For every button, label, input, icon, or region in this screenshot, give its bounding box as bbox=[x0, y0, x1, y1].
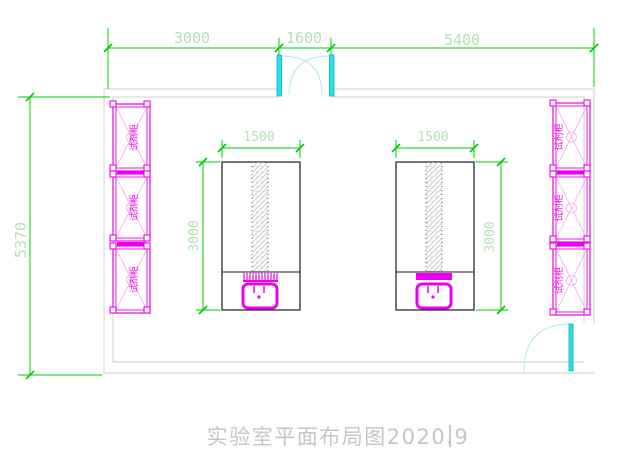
bench-center-duct bbox=[426, 162, 442, 272]
cabinet-column-left: 试剂柜 试剂柜 试剂柜 bbox=[110, 101, 150, 313]
cabinet-label: 试剂柜 bbox=[128, 266, 140, 293]
cabinet-divider bbox=[557, 242, 586, 246]
lab-bench-right bbox=[396, 162, 474, 310]
drawing-title-block: 实验室平面布局图2020.9 bbox=[207, 425, 469, 449]
bench-center-duct bbox=[252, 162, 268, 272]
reagent-cabinet: 试剂柜 bbox=[110, 101, 150, 171]
dimension-top: 3000 1600 5400 bbox=[104, 28, 598, 89]
reagent-cabinet: 试剂柜 bbox=[110, 171, 150, 241]
bench-depth-label: 3000 bbox=[187, 220, 202, 251]
right-single-door bbox=[524, 324, 573, 371]
cabinet-label: 试剂柜 bbox=[553, 123, 565, 150]
bench-width-label: 1500 bbox=[417, 130, 448, 145]
cabinet-label: 试剂柜 bbox=[128, 124, 140, 151]
door-leaf-right bbox=[330, 55, 335, 96]
floor-plan-canvas[interactable]: 3000 1600 5400 5370 bbox=[0, 0, 619, 469]
door-arc-right bbox=[289, 56, 330, 95]
door-arc-left bbox=[281, 56, 322, 95]
drawing-title: 实验室平面布局图2020.9 bbox=[207, 425, 469, 449]
door-arc bbox=[524, 324, 571, 371]
cabinet-label: 试剂柜 bbox=[553, 267, 565, 294]
dimension-left: 5370 bbox=[12, 93, 110, 379]
cabinet-divider bbox=[117, 242, 146, 246]
bench-width-label: 1500 bbox=[243, 130, 274, 145]
door-leaf-left bbox=[277, 55, 282, 96]
bench-depth-label: 3000 bbox=[483, 221, 498, 252]
dim-left-height-label: 5370 bbox=[12, 222, 30, 258]
dim-top-middle-label: 1600 bbox=[286, 29, 322, 47]
lab-bench-left bbox=[222, 162, 300, 310]
top-double-door bbox=[277, 55, 334, 96]
cabinet-label: 试剂柜 bbox=[553, 194, 565, 221]
reagent-cabinet: 试剂柜 bbox=[110, 243, 150, 313]
dim-top-left-label: 3000 bbox=[174, 29, 210, 47]
door-leaf bbox=[569, 324, 573, 371]
dim-top-right-label: 5400 bbox=[444, 31, 480, 49]
cad-drawing-viewport[interactable]: 3000 1600 5400 5370 bbox=[0, 0, 619, 469]
cabinet-label: 试剂柜 bbox=[128, 194, 140, 221]
room-walls bbox=[104, 89, 594, 373]
